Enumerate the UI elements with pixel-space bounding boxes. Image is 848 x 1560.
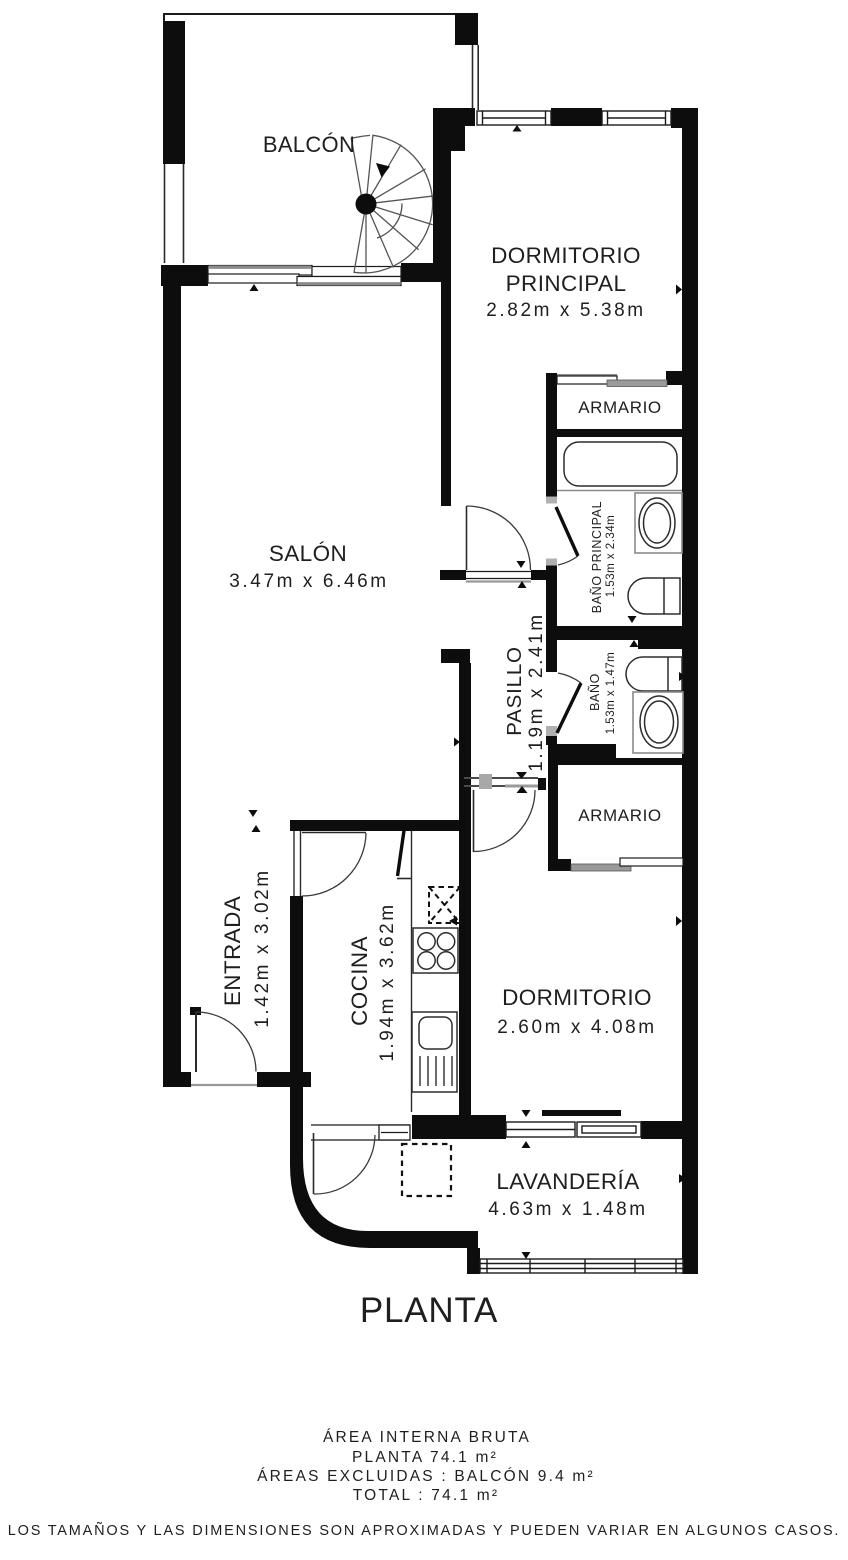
- svg-text:SALÓN: SALÓN: [269, 541, 347, 566]
- svg-text:1.53m x 1.47m: 1.53m x 1.47m: [605, 652, 617, 735]
- svg-text:DORMITORIO: DORMITORIO: [491, 243, 641, 268]
- svg-text:4.63m x 1.48m: 4.63m x 1.48m: [488, 1199, 647, 1220]
- svg-text:LOS TAMAÑOS Y LAS DIMENSIONES: LOS TAMAÑOS Y LAS DIMENSIONES SON APROXI…: [8, 1522, 841, 1539]
- svg-text:PLANTA 74.1 m²: PLANTA 74.1 m²: [352, 1449, 498, 1466]
- svg-text:1.42m x 3.02m: 1.42m x 3.02m: [252, 868, 273, 1027]
- svg-text:1.53m x 2.34m: 1.53m x 2.34m: [605, 515, 617, 598]
- svg-text:BALCÓN: BALCÓN: [263, 132, 355, 157]
- svg-text:2.60m x 4.08m: 2.60m x 4.08m: [497, 1017, 656, 1038]
- svg-text:ARMARIO: ARMARIO: [578, 398, 662, 417]
- svg-text:3.47m x 6.46m: 3.47m x 6.46m: [229, 571, 388, 592]
- svg-text:1.19m x 2.41m: 1.19m x 2.41m: [526, 612, 547, 771]
- svg-text:ENTRADA: ENTRADA: [220, 896, 245, 1006]
- svg-text:ÁREAS EXCLUIDAS : BALCÓN 9.4: ÁREAS EXCLUIDAS : BALCÓN 9.4 m²: [257, 1468, 595, 1485]
- svg-text:PLANTA: PLANTA: [360, 1291, 498, 1330]
- svg-text:DORMITORIO: DORMITORIO: [502, 985, 652, 1010]
- svg-text:PRINCIPAL: PRINCIPAL: [506, 271, 627, 296]
- svg-text:COCINA: COCINA: [347, 936, 372, 1026]
- svg-text:PASILLO: PASILLO: [503, 646, 526, 736]
- svg-text:BAÑO: BAÑO: [588, 673, 602, 711]
- svg-text:TOTAL : 74.1 m²: TOTAL : 74.1 m²: [353, 1487, 499, 1504]
- svg-text:1.94m x 3.62m: 1.94m x 3.62m: [377, 902, 398, 1061]
- svg-text:ÁREA INTERNA BRUTA: ÁREA INTERNA BRUTA: [323, 1429, 531, 1446]
- svg-text:2.82m x 5.38m: 2.82m x 5.38m: [486, 300, 645, 321]
- svg-text:LAVANDERÍA: LAVANDERÍA: [496, 1169, 639, 1194]
- svg-text:BAÑO PRINCIPAL: BAÑO PRINCIPAL: [590, 501, 604, 613]
- svg-text:ARMARIO: ARMARIO: [578, 806, 662, 825]
